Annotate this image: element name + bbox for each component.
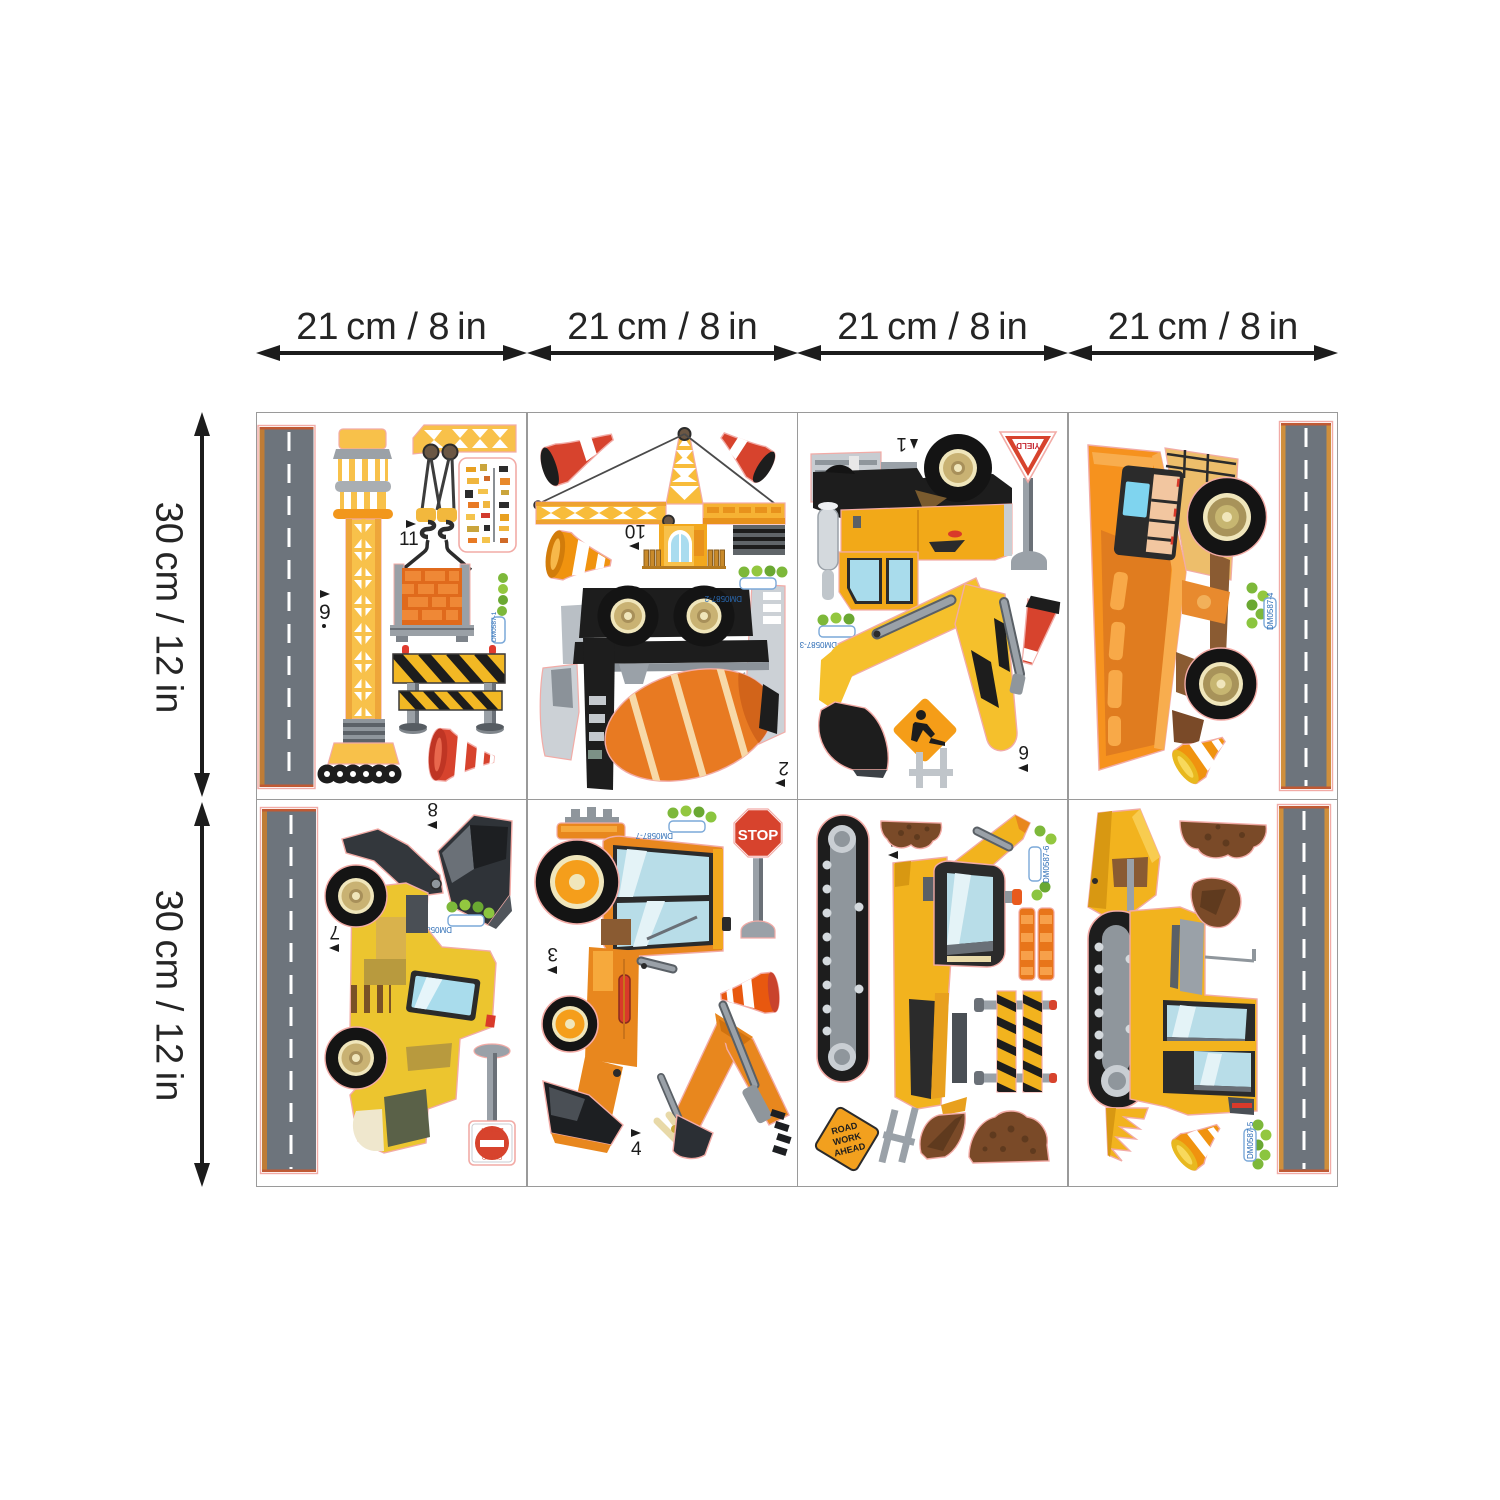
svg-text:3: 3: [547, 943, 558, 964]
svg-text:DO NOT: DO NOT: [480, 1126, 504, 1132]
svg-text:DM0587-4: DM0587-4: [1266, 592, 1275, 630]
svg-text:2: 2: [778, 757, 789, 778]
svg-text:ENTER: ENTER: [481, 1153, 502, 1159]
svg-text:11: 11: [399, 529, 419, 550]
svg-text:STOP: STOP: [738, 827, 779, 844]
svg-text:10: 10: [625, 520, 646, 541]
svg-text:9: 9: [319, 601, 331, 624]
svg-text:1: 1: [896, 433, 907, 454]
svg-text:YIELD: YIELD: [1016, 441, 1040, 450]
svg-text:DM0587-6: DM0587-6: [1042, 845, 1051, 883]
svg-text:DM0587-5: DM0587-5: [1246, 1121, 1255, 1159]
svg-text:DM0587-2: DM0587-2: [704, 594, 742, 603]
svg-text:4: 4: [631, 1139, 642, 1160]
svg-text:DM0587-1: DM0587-1: [491, 611, 498, 642]
svg-text:DM0587-3: DM0587-3: [799, 640, 837, 649]
svg-text:7: 7: [329, 921, 340, 942]
svg-text:6: 6: [1018, 741, 1029, 762]
svg-text:DM0587-7: DM0587-7: [635, 831, 673, 840]
svg-text:8: 8: [427, 799, 438, 819]
